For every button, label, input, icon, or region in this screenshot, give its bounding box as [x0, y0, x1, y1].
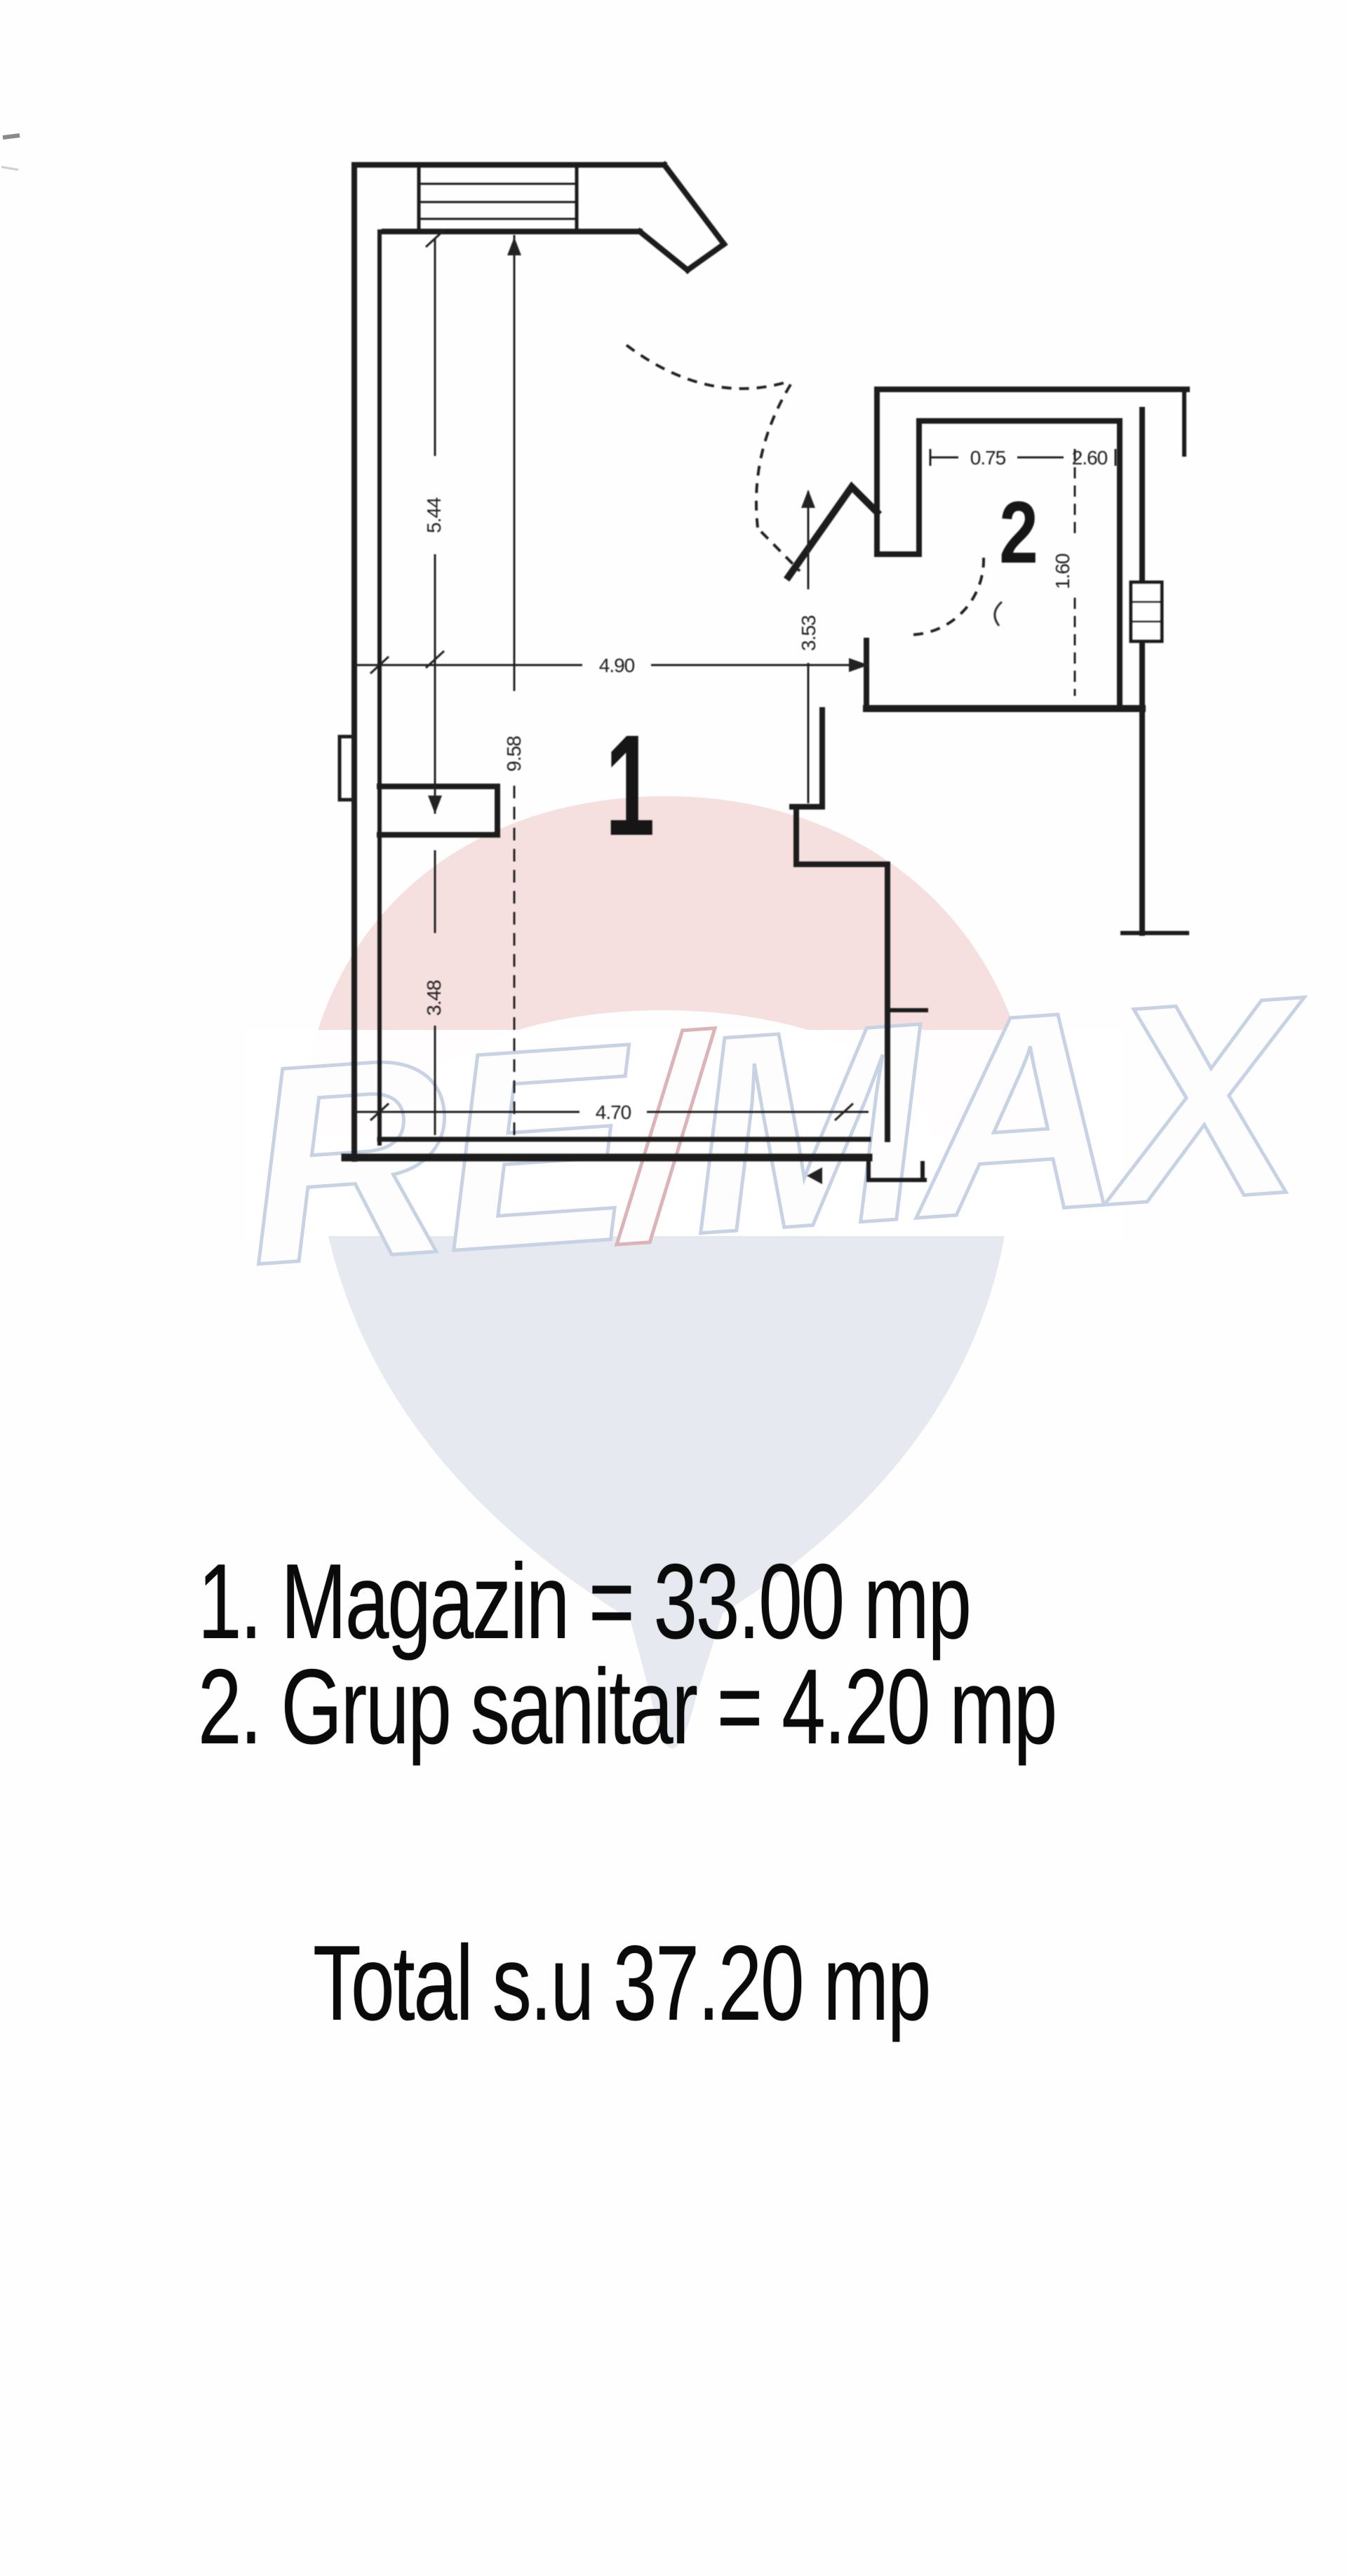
- dim-interior-height: 9.58: [503, 736, 525, 772]
- remax-max-text: MAX: [678, 937, 1322, 1293]
- dim-left-height: 5.44: [423, 497, 445, 533]
- page-corner-marks: [1, 135, 20, 170]
- dim-right-height: 3.53: [798, 615, 819, 651]
- legend-room2-area: 2. Grup sanitar = 4.20 mp: [198, 1646, 1056, 1769]
- dim-bottom-left-height: 3.48: [423, 980, 445, 1016]
- dim-room2-height: 1.60: [1052, 554, 1073, 589]
- legend-room1-area: 1. Magazin = 33.00 mp: [198, 1541, 970, 1663]
- dim-bottom-width: 4.70: [596, 1101, 631, 1123]
- dim-room2-niche-width: 0.75: [970, 447, 1006, 469]
- floor-plan-canvas: RE / MAX: [0, 0, 1347, 2576]
- legend-total-area: Total s.u 37.20 mp: [313, 1922, 930, 2045]
- remax-re-text: RE: [236, 984, 650, 1324]
- room1-label: 1: [605, 706, 655, 866]
- dim-room2-width: 2.60: [1072, 447, 1108, 469]
- door-leaf-mark: [995, 602, 1002, 626]
- floor-plan-document: RE / MAX: [0, 0, 1347, 2576]
- room2-label: 2: [999, 483, 1038, 581]
- dim-room1-width: 4.90: [599, 655, 635, 676]
- window-hatch: [1131, 582, 1162, 641]
